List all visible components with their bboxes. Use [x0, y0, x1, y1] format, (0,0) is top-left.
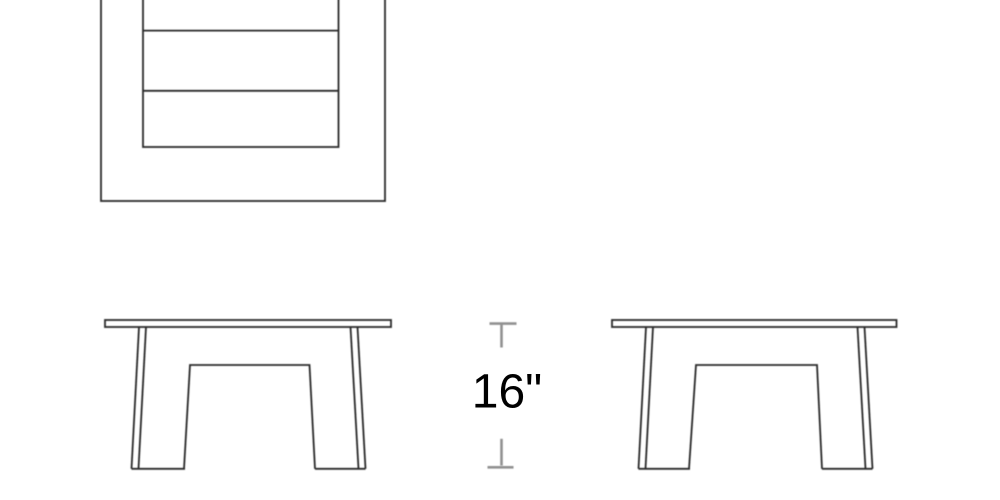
svg-text:16": 16"	[472, 366, 542, 419]
